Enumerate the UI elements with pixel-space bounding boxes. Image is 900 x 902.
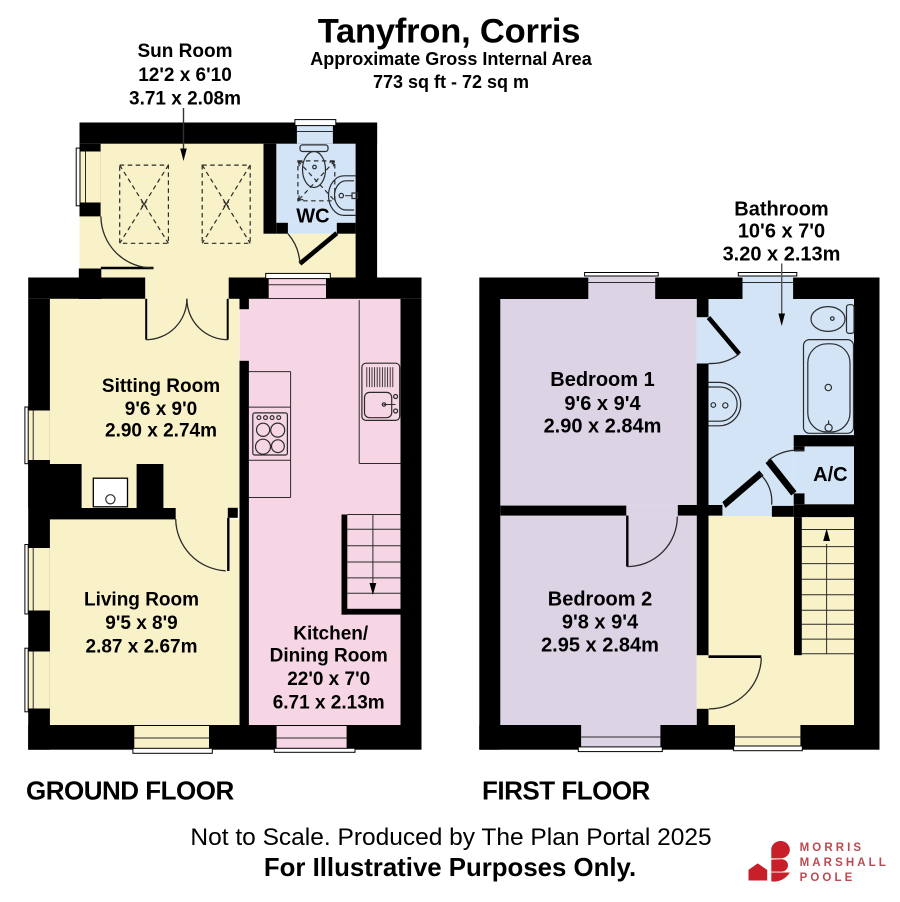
svg-text:9'5 x 8'9: 9'5 x 8'9 bbox=[105, 613, 177, 634]
svg-text:9'6 x 9'4: 9'6 x 9'4 bbox=[564, 393, 641, 415]
svg-text:10'6 x 7'0: 10'6 x 7'0 bbox=[738, 220, 825, 242]
svg-text:Living Room: Living Room bbox=[84, 590, 199, 611]
svg-text:3.20 x 2.13m: 3.20 x 2.13m bbox=[723, 244, 841, 266]
svg-text:773 sq ft - 72 sq m: 773 sq ft - 72 sq m bbox=[373, 72, 529, 92]
svg-text:2.87 x 2.67m: 2.87 x 2.67m bbox=[86, 637, 198, 658]
svg-text:POOLE: POOLE bbox=[800, 872, 856, 884]
svg-text:2.90 x 2.74m: 2.90 x 2.74m bbox=[105, 421, 217, 442]
svg-text:Bathroom: Bathroom bbox=[734, 199, 828, 221]
svg-text:Tanyfron, Corris: Tanyfron, Corris bbox=[318, 13, 581, 51]
svg-text:Sitting Room: Sitting Room bbox=[102, 376, 220, 397]
svg-text:MARSHALL: MARSHALL bbox=[800, 857, 889, 869]
svg-text:For Illustrative Purposes Only: For Illustrative Purposes Only. bbox=[264, 854, 636, 882]
svg-text:GROUND FLOOR: GROUND FLOOR bbox=[26, 776, 234, 806]
svg-text:9'6 x 9'0: 9'6 x 9'0 bbox=[125, 399, 197, 420]
svg-text:Bedroom 1: Bedroom 1 bbox=[550, 369, 654, 391]
svg-text:Kitchen/: Kitchen/ bbox=[293, 624, 369, 645]
svg-text:9'8 x 9'4: 9'8 x 9'4 bbox=[562, 612, 639, 634]
svg-text:MORRIS: MORRIS bbox=[800, 842, 865, 854]
svg-text:22'0 x 7'0: 22'0 x 7'0 bbox=[287, 669, 370, 690]
svg-text:Not to Scale. Produced by The: Not to Scale. Produced by The Plan Porta… bbox=[190, 824, 711, 851]
svg-text:Approximate Gross Internal Are: Approximate Gross Internal Area bbox=[310, 49, 592, 69]
svg-text:FIRST FLOOR: FIRST FLOOR bbox=[482, 776, 651, 806]
svg-text:A/C: A/C bbox=[813, 464, 847, 486]
svg-text:2.95 x 2.84m: 2.95 x 2.84m bbox=[541, 635, 659, 657]
svg-text:12'2 x 6'10: 12'2 x 6'10 bbox=[138, 65, 232, 86]
svg-text:Sun Room: Sun Room bbox=[138, 41, 233, 62]
svg-text:6.71 x 2.13m: 6.71 x 2.13m bbox=[273, 693, 385, 714]
svg-text:WC: WC bbox=[296, 206, 329, 228]
svg-text:Bedroom 2: Bedroom 2 bbox=[548, 589, 652, 611]
svg-text:2.90 x 2.84m: 2.90 x 2.84m bbox=[544, 416, 662, 438]
svg-text:Dining Room: Dining Room bbox=[270, 646, 388, 667]
svg-text:3.71 x 2.08m: 3.71 x 2.08m bbox=[129, 89, 241, 110]
